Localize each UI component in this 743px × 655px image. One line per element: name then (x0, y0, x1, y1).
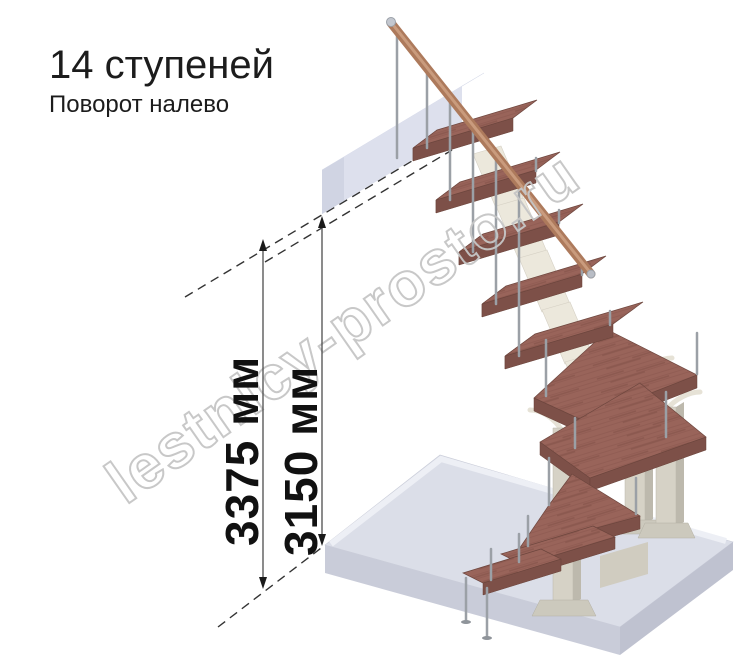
page-title: 14 ступеней (49, 43, 274, 87)
dimension-3375-mm: 3375 мм (216, 239, 268, 589)
illustration-canvas: lestnicy-prosto.ru 3375 мм 3150 мм 14 ст… (0, 0, 743, 655)
handrail-end-cap (587, 270, 595, 278)
projection-line-floor (218, 545, 325, 627)
dimension-arrow-up (318, 216, 326, 228)
dimension-label-clear-height: 3150 мм (275, 366, 327, 556)
dimension-arrow-up (259, 239, 267, 251)
dimension-arrow-down (259, 577, 267, 589)
handrail-top-cap (387, 18, 396, 27)
dimension-3150-mm: 3150 мм (275, 216, 327, 556)
landing-end-face (322, 157, 344, 214)
dimension-label-total-height: 3375 мм (216, 356, 268, 546)
page-subtitle: Поворот налево (49, 91, 229, 118)
staircase-illustration: lestnicy-prosto.ru 3375 мм 3150 мм 14 ст… (0, 0, 743, 655)
